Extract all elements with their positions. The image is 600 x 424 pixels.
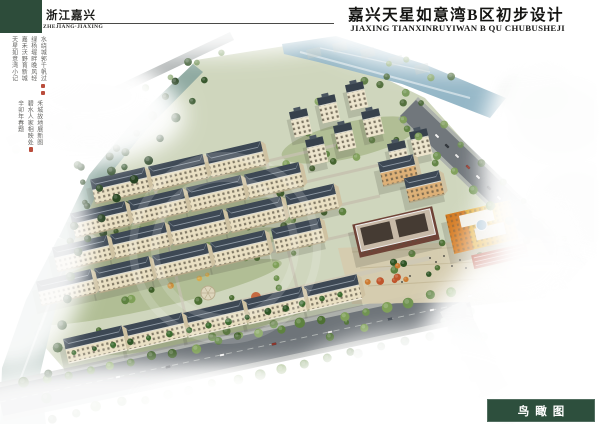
calligraphy-inscription: 水绕城郭千帆过 绿杨堤畔晚风轻 嘉禾沃野育新城 天星如意湾小记 (8, 36, 46, 106)
region-name-cn: 浙江嘉兴 (46, 7, 96, 23)
view-caption-box: 鸟瞰图 (487, 399, 595, 422)
seal-stamp (41, 84, 45, 88)
seal-stamp (41, 91, 45, 95)
bird-eye-view-rendering (0, 0, 600, 424)
view-caption-label: 鸟瞰图 (512, 403, 571, 419)
calligraphy-inscription-lower: 禾城故地展新图 碧水人家相映处 辛卯年春题 (14, 100, 43, 162)
project-title-en: JIAXING TIANXINRUYIWAN B QU CHUBUSHEJI (350, 23, 565, 33)
design-sheet: 浙江嘉兴 ZHEJIANG·JIAXING 嘉兴天星如意湾B区初步设计 JIAX… (0, 0, 600, 424)
publisher-logo-block (0, 0, 42, 33)
region-name-en: ZHEJIANG·JIAXING (43, 24, 103, 30)
aerial-rendering (0, 0, 600, 424)
project-title-cn: 嘉兴天星如意湾B区初步设计 (348, 3, 564, 25)
seal-stamp (29, 147, 33, 152)
right-fade (592, 0, 600, 424)
header-rule (57, 23, 334, 24)
